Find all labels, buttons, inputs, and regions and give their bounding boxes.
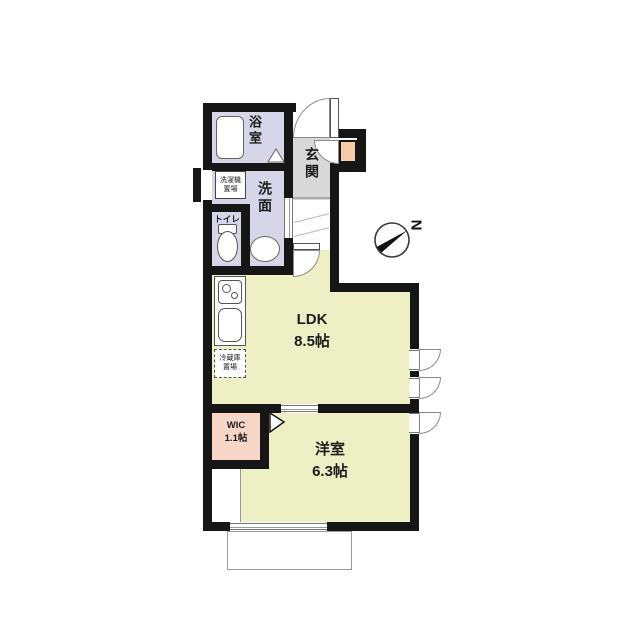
wall <box>203 103 212 170</box>
wall <box>212 163 284 171</box>
entrance-door-leaf <box>330 98 339 138</box>
washroom-sliding-door <box>284 198 293 238</box>
wall <box>203 103 296 112</box>
shoe-cabinet <box>339 140 357 163</box>
floorplan: 洗濯機 置場 冷蔵庫 置場 N 浴室 洗面 玄関 トイレ LDK 8.5帖 WI… <box>0 0 640 640</box>
refrigerator-label-2: 置場 <box>215 364 245 372</box>
entrance-step-line <box>293 197 330 199</box>
ldk-door-leaf <box>293 243 320 250</box>
window-swing-arc <box>419 412 441 434</box>
compass-north-label: N <box>408 220 425 231</box>
bathroom-label: 浴室 <box>245 115 264 147</box>
western-room-area-label: 6.3帖 <box>280 462 380 482</box>
western-room-sliding-door <box>281 405 318 412</box>
toilet-bowl-icon <box>217 231 238 262</box>
wall <box>203 200 212 531</box>
ldk-area-label: 8.5帖 <box>262 332 362 352</box>
window-swing-arc <box>419 349 441 371</box>
wall <box>203 460 269 469</box>
wall <box>327 522 419 531</box>
balcony <box>227 531 352 570</box>
wall <box>410 434 419 531</box>
bath-door-icon <box>267 148 285 163</box>
wall <box>203 266 293 275</box>
refrigerator-area: 冷蔵庫 置場 <box>214 349 246 378</box>
wall <box>330 163 366 172</box>
western-room-name-label: 洋室 <box>280 440 380 460</box>
refrigerator-label-1: 冷蔵庫 <box>215 355 245 363</box>
compass-icon: N <box>366 210 432 266</box>
wall-window-outer <box>193 168 201 202</box>
balcony-window <box>230 523 327 530</box>
wall <box>284 103 293 198</box>
toilet-label: トイレ <box>213 213 241 225</box>
wic-area-label: 1.1帖 <box>212 433 260 445</box>
wall <box>203 522 230 531</box>
bathtub-icon <box>216 116 244 159</box>
washing-machine-label-2: 置場 <box>216 186 245 194</box>
hall-hatch-line <box>294 227 329 237</box>
entrance-door-swing-arc <box>293 98 330 138</box>
wall <box>330 283 419 292</box>
ldk-name-label: LDK <box>262 310 362 330</box>
wall <box>318 404 419 413</box>
washroom-label: 洗面 <box>255 181 275 215</box>
wall <box>410 371 419 377</box>
window-swing-arc <box>419 377 441 399</box>
wall <box>330 172 339 292</box>
washbasin-icon <box>250 236 280 262</box>
room-western-floor <box>241 469 269 522</box>
kitchen-sink-icon <box>218 308 242 342</box>
washing-machine-area: 洗濯機 置場 <box>215 171 246 199</box>
stove-icon <box>218 280 242 304</box>
service-niche <box>212 469 241 522</box>
wic-name-label: WIC <box>212 420 260 432</box>
wall <box>410 283 419 349</box>
washing-machine-label-1: 洗濯機 <box>216 177 245 185</box>
wic-door-icon <box>269 412 286 433</box>
entrance-label: 玄関 <box>302 147 322 181</box>
wall <box>241 204 250 266</box>
hall-hatch-line <box>294 213 329 223</box>
